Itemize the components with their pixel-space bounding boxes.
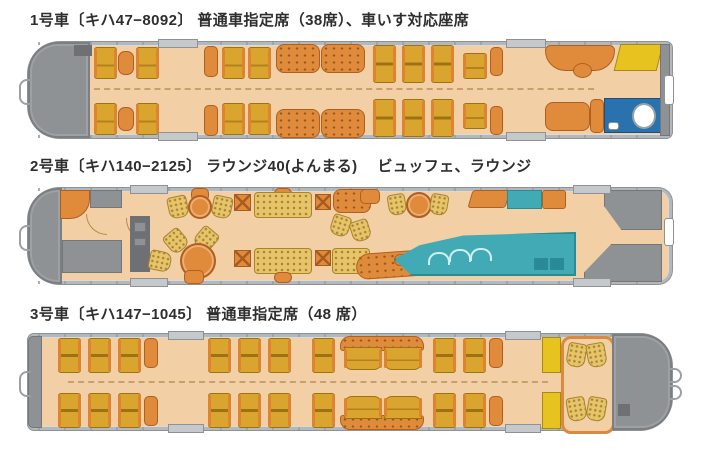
side-seat xyxy=(144,396,158,426)
side-table xyxy=(234,250,251,267)
service-counter xyxy=(467,190,510,208)
coupler xyxy=(670,368,682,383)
box-seat xyxy=(136,103,159,135)
buffet-equipment xyxy=(550,258,564,270)
door xyxy=(130,278,168,287)
facing-seats xyxy=(238,338,261,373)
bench-cushion xyxy=(344,347,382,370)
round-table xyxy=(406,192,432,218)
facing-seats xyxy=(88,393,111,428)
toilet xyxy=(632,103,656,129)
seat-table xyxy=(274,272,292,283)
bench-cushion xyxy=(384,347,422,370)
facing-seats xyxy=(463,393,486,428)
door xyxy=(158,39,198,48)
car1-diagram xyxy=(28,42,672,138)
facing-seats xyxy=(373,45,396,83)
facing-seats xyxy=(238,393,261,428)
side-table xyxy=(315,250,331,266)
door xyxy=(573,185,611,194)
bench-seat xyxy=(545,102,590,131)
facing-seats xyxy=(118,338,141,373)
sink xyxy=(608,122,619,130)
facing-seats xyxy=(58,338,81,373)
coupler xyxy=(670,385,682,400)
seat-table xyxy=(118,51,134,75)
facing-seats xyxy=(431,99,454,137)
side-seat xyxy=(204,46,218,77)
corner-bench xyxy=(614,44,664,71)
cab-console xyxy=(74,45,92,56)
side-seat xyxy=(489,396,503,426)
counter-sink xyxy=(449,249,471,262)
counter-top xyxy=(134,238,146,246)
car2-diagram xyxy=(28,188,672,284)
facing-seats xyxy=(402,45,425,83)
facing-seats xyxy=(88,338,111,373)
door xyxy=(168,424,204,433)
facing-seats xyxy=(268,393,291,428)
car3-diagram xyxy=(28,334,672,430)
facing-seats xyxy=(118,393,141,428)
side-seat xyxy=(144,338,158,368)
box-seat xyxy=(248,103,271,135)
luggage-rack xyxy=(542,337,561,373)
driver-cab xyxy=(28,42,90,138)
facing-seats xyxy=(433,338,456,373)
coupler xyxy=(19,371,31,397)
aisle-line xyxy=(68,381,548,383)
door xyxy=(130,185,168,194)
round-table xyxy=(188,195,212,219)
coupler xyxy=(19,225,31,251)
service-counter-top xyxy=(507,190,542,209)
aisle-line xyxy=(94,88,594,90)
side-seat xyxy=(490,47,503,76)
door xyxy=(506,132,546,141)
seat-table xyxy=(573,63,592,78)
gangway-door xyxy=(664,218,674,246)
bench-cushion xyxy=(384,396,422,419)
service-counter xyxy=(542,190,566,209)
car1-heading: 1号車〔キハ47−8092〕 普通車指定席（38席）、車いす対応座席 xyxy=(30,9,469,30)
facing-seats xyxy=(312,393,335,428)
bench-cushion xyxy=(344,396,382,419)
box-seat xyxy=(94,103,117,135)
counter-sink xyxy=(470,248,492,261)
door xyxy=(573,278,611,287)
facing-seats xyxy=(312,338,335,373)
box-seat xyxy=(463,103,487,129)
machine-room xyxy=(62,240,122,273)
cab-console xyxy=(618,404,630,416)
bench-seat xyxy=(321,109,365,138)
facing-seats xyxy=(58,393,81,428)
seat-table xyxy=(118,107,134,131)
facing-seats xyxy=(208,338,231,373)
side-table xyxy=(234,194,251,211)
facing-seats xyxy=(433,393,456,428)
bench-seat xyxy=(276,44,320,73)
facing-seats xyxy=(402,99,425,137)
luggage-rack xyxy=(542,392,561,429)
counter-top xyxy=(134,222,146,232)
side-table xyxy=(315,194,331,210)
facing-seats xyxy=(463,338,486,373)
box-seat xyxy=(463,53,487,79)
box-seat xyxy=(222,47,245,79)
side-seat xyxy=(489,338,503,368)
door xyxy=(506,39,546,48)
side-seat xyxy=(490,106,503,135)
facing-seats xyxy=(208,393,231,428)
toilet-partition xyxy=(590,99,604,133)
counter-sink xyxy=(428,252,450,265)
door xyxy=(158,132,198,141)
lounge-sofa xyxy=(254,248,312,274)
box-seat xyxy=(94,47,117,79)
box-seat xyxy=(222,103,245,135)
partition xyxy=(90,190,122,208)
facing-seats xyxy=(431,45,454,83)
lounge-chair xyxy=(184,270,204,284)
bench-seat xyxy=(276,109,320,138)
buffet-equipment xyxy=(534,258,548,270)
door xyxy=(505,331,541,340)
lounge-chair xyxy=(360,189,380,204)
door xyxy=(505,424,541,433)
door xyxy=(168,331,204,340)
car2-heading: 2号車〔キハ140−2125〕 ラウンジ40(よんまる) ビュッフェ、ラウンジ xyxy=(30,155,532,176)
facing-seats xyxy=(268,338,291,373)
lounge-sofa xyxy=(254,192,312,218)
box-seat xyxy=(248,47,271,79)
gangway-door xyxy=(664,75,674,105)
coupler xyxy=(19,79,31,105)
box-seat xyxy=(136,47,159,79)
car3-heading: 3号車〔キハ147−1045〕 普通車指定席（48 席） xyxy=(30,303,367,324)
driver-cab xyxy=(28,188,62,284)
facing-seats xyxy=(373,99,396,137)
side-seat xyxy=(204,105,218,136)
bench-seat xyxy=(321,44,365,73)
